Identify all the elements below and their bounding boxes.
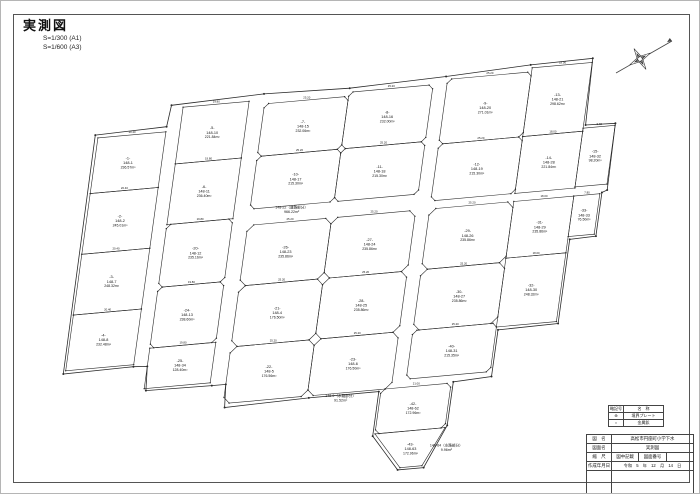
edge-dimension: 25.20 (296, 148, 303, 152)
parcel: -9-148-20271.01m²25.20 (439, 71, 532, 145)
parcel-lot-number: 148-8 (99, 338, 109, 342)
vertex-dot (133, 364, 134, 365)
vertex-dot (435, 208, 436, 209)
parcel-lot-number: 148-26 (462, 234, 474, 238)
vertex-dot (324, 272, 325, 273)
vertex-dot (397, 469, 399, 471)
vertex-dot (422, 263, 423, 264)
vertex-dot (165, 131, 166, 132)
vertex-dot (492, 323, 493, 324)
edge-dimension: 25.20 (371, 209, 378, 213)
parcel-index-label: -32- (528, 284, 535, 288)
vertex-dot (428, 214, 429, 215)
scale-value: 図中記載 (612, 453, 639, 462)
vertex-dot (450, 386, 451, 387)
vertex-dot (228, 402, 229, 403)
parcel-index-label: -10- (292, 173, 299, 177)
vertex-dot (556, 321, 557, 322)
parcel-index-label: -3- (109, 275, 114, 279)
vertex-dot (418, 189, 419, 190)
edge-dimension: 7.80 (584, 190, 590, 194)
parcel-area-label: 298.62m² (550, 102, 566, 106)
vertex-dot (240, 279, 241, 280)
vertex-dot (431, 196, 432, 197)
parcel-area-label: 215.30m² (372, 174, 388, 178)
vertex-dot (372, 435, 374, 437)
title-block-row: 作成年月日 令和 5 年 12 月 14 日 (587, 462, 694, 471)
legend-header-name: 名 称 (624, 406, 664, 413)
blank-cell (612, 471, 694, 494)
vertex-dot (599, 193, 600, 194)
vertex-dot (157, 291, 158, 292)
parcel-index-label: -12- (473, 162, 480, 166)
vertex-dot (421, 141, 422, 142)
parcel-area-label: 98.20m² (589, 159, 603, 163)
parcel-index-label: -1- (126, 156, 131, 160)
vertex-dot (530, 64, 532, 66)
vertex-dot (557, 323, 559, 325)
legend-symbol-boundary-plate: ⊕ (609, 413, 624, 420)
vertex-dot (337, 149, 338, 150)
vertex-dot (307, 389, 308, 390)
vertex-dot (246, 231, 247, 232)
vertex-dot (268, 103, 269, 104)
parcel-index-label: -13- (554, 93, 561, 97)
edge-dimension: 20.40 (113, 247, 120, 251)
vertex-dot (325, 218, 326, 219)
edge-dimension: 18.00 (533, 251, 540, 255)
vertex-dot (166, 126, 168, 128)
vertex-dot (421, 465, 422, 466)
vertex-dot (412, 334, 413, 335)
vertex-dot (513, 201, 514, 202)
annotation-line: 148-64（水路部分） (430, 443, 463, 448)
edge-dimension: 20.40 (121, 186, 128, 190)
vertex-dot (445, 423, 446, 424)
parcel: -31-148-29235.86m²18.00 (505, 194, 574, 259)
vertex-dot (210, 382, 211, 383)
parcel-lot-number: 148-7 (107, 280, 117, 284)
parcel: -14-148-28221.84m²18.00 (514, 129, 583, 194)
sheet-name-label: 図面名 (587, 444, 612, 453)
vertex-dot (442, 143, 443, 144)
parcel-index-label: -43- (407, 442, 414, 446)
parcel-index-label: -21- (274, 306, 281, 310)
vertex-dot (592, 57, 594, 59)
parcel-lot-number: 148-1 (123, 161, 133, 165)
vertex-dot (606, 183, 607, 184)
drawing-name-label: 図 名 (587, 435, 612, 444)
edge-dimension: 19.80 (197, 217, 204, 221)
vertex-dot (263, 93, 265, 95)
parcel-index-label: -25- (177, 359, 184, 363)
parcel: -20-148-12235.16m²19.80 (158, 217, 233, 288)
parcel-lot-number: 148-15 (297, 125, 309, 129)
parcel-area-label: 176.50m² (270, 315, 286, 319)
cadastral-map: -1-148-1236.57m²20.40-2-148-2245.01m²20.… (1, 1, 699, 493)
vertex-dot (428, 84, 429, 85)
vertex-dot (62, 373, 64, 375)
creation-date-label: 作成年月日 (587, 462, 612, 471)
vertex-dot (166, 224, 167, 225)
parcel-index-label: -33- (581, 209, 588, 213)
parcel-area-label: 172.96m² (406, 411, 422, 415)
parcel: -6-148-11236.40m²19.80 (166, 156, 242, 225)
vertex-dot (312, 395, 313, 396)
vertex-dot (149, 248, 150, 249)
parcel: -15-148-3298.20m²9.60 (574, 122, 616, 187)
parcel: -40-148-31215.35m²25.20 (406, 322, 497, 379)
vertex-dot (334, 197, 335, 198)
parcel-area-label: 76.50m² (578, 218, 592, 222)
parcel-area-label: 215.30m² (469, 171, 485, 175)
edge-dimension: 25.20 (278, 278, 285, 282)
parcel-lot-number: 148-63 (404, 447, 416, 451)
edge-dimension: 19.80 (188, 280, 195, 284)
parcel-area-label: 235.86m² (460, 238, 476, 242)
parcel-index-label: -42- (410, 402, 417, 406)
vertex-dot (320, 338, 321, 339)
vertex-dot (344, 96, 345, 97)
vertex-dot (349, 87, 351, 89)
vertex-dot (420, 275, 421, 276)
vertex-dot (601, 192, 603, 194)
vertex-dot (257, 152, 258, 153)
vertex-dot (340, 152, 341, 153)
parcel: -27-148-24235.86m²25.20 (324, 209, 416, 278)
parcel-area-label: 176.56m² (262, 374, 278, 378)
parcel: -28-148-25235.86m²25.20 (315, 270, 407, 339)
vertex-dot (446, 383, 447, 384)
vertex-dot (162, 286, 163, 287)
vertex-dot (241, 157, 242, 158)
edge-dimension: 25.20 (354, 331, 361, 335)
vertex-dot (150, 344, 151, 345)
edge-dimension: 25.20 (303, 96, 310, 100)
parcel-index-label: -28- (358, 299, 365, 303)
parcel-index-label: -14- (545, 156, 552, 160)
vertex-dot (401, 271, 402, 272)
edge-dimension: 18.00 (541, 194, 548, 198)
parcel-index-label: -4- (101, 334, 106, 338)
parcel-index-label: -26- (282, 246, 289, 250)
parcel: -5-148-10221.84m²19.80 (175, 100, 250, 165)
parcel-lot-number: 148-23 (280, 250, 292, 254)
vertex-dot (145, 390, 147, 392)
legend-row: ⊕ 境界プレート (609, 413, 664, 420)
vertex-dot (532, 67, 533, 68)
vertex-dot (446, 83, 447, 84)
vertex-dot (582, 128, 583, 129)
parcel-area-label: 221.84m² (205, 135, 221, 139)
vertex-dot (253, 208, 254, 209)
parcel-index-label: -9- (483, 102, 488, 106)
vertex-dot (220, 281, 221, 282)
vertex-dot (410, 378, 411, 379)
parcel-lot-number: 148-28 (543, 161, 555, 165)
parcel-lot-number: 148-24 (364, 243, 376, 247)
vertex-dot (182, 107, 183, 108)
vertex-dot (606, 189, 608, 191)
vertex-dot (330, 223, 331, 224)
vertex-dot (211, 385, 213, 387)
vertex-dot (337, 201, 338, 202)
parcel-index-label: -31- (536, 221, 543, 225)
vertex-dot (397, 337, 398, 338)
vertex-dot (514, 193, 515, 194)
parcel: -33-148-3376.50m²7.80 (568, 190, 601, 237)
vertex-dot (170, 224, 171, 225)
vertex-dot (499, 262, 500, 263)
parcel-lot-number: 148-12 (190, 251, 202, 255)
edge-dimension: 25.20 (486, 71, 493, 75)
vertex-dot (444, 427, 445, 428)
edge-dimension: 25.20 (388, 84, 395, 88)
edge-dimension: 18.00 (559, 61, 566, 65)
vertex-dot (392, 332, 393, 333)
vertex-dot (261, 156, 262, 157)
parcel-area-label: 232.48m² (96, 343, 112, 347)
vertex-dot (166, 228, 167, 229)
legend-name-metal-pin: 金属鋲 (624, 420, 664, 427)
title-block: 図 名 高松市円座町小学下水 図面名 実測図 縮 尺 図中記載 図面番号 作成年… (586, 434, 694, 494)
parcel-lot-number: 148-25 (355, 303, 367, 307)
annotation-line: 9.96m² (441, 448, 453, 452)
vertex-dot (348, 96, 349, 97)
vertex-dot (486, 371, 487, 372)
parcel: -42-148-62172.96m²21.00 (375, 382, 452, 435)
parcel: -3-148-7248.32m²20.40 (73, 247, 151, 316)
parcel-area-label: 215.35m² (444, 354, 460, 358)
vertex-dot (263, 107, 264, 108)
vertex-dot (216, 338, 217, 339)
vertex-dot (232, 222, 233, 223)
vertex-dot (490, 367, 491, 368)
legend-row: ○ 金属鋲 (609, 420, 664, 427)
parcel-index-label: -5- (210, 126, 215, 130)
parcel-area-label: 176.50m² (346, 367, 362, 371)
annotation-line: 966.22m² (284, 210, 300, 214)
vertex-dot (132, 366, 134, 368)
annotation-label: 148-64（水路部分）9.96m² (430, 443, 463, 452)
vertex-dot (439, 140, 440, 141)
vertex-dot (414, 216, 415, 217)
parcel-lot-number: 148-30 (525, 288, 537, 292)
parcel-index-label: -2- (118, 215, 123, 219)
vertex-dot (614, 122, 616, 124)
vertex-dot (507, 201, 508, 202)
vertex-dot (248, 101, 249, 102)
parcel-lot-number: 148-11 (198, 190, 210, 194)
vertex-dot (391, 382, 392, 383)
vertex-dot (374, 433, 375, 434)
parcel: -30-148-27235.86m²25.20 (413, 261, 505, 330)
vertex-dot (496, 326, 497, 327)
vertex-dot (224, 407, 226, 409)
vertex-dot (375, 429, 376, 430)
edge-dimension: 20.40 (104, 307, 111, 311)
vertex-dot (250, 204, 251, 205)
vertex-dot (65, 370, 66, 371)
title-block-row: 縮 尺 図中記載 図面番号 (587, 453, 694, 462)
edge-dimension: 25.20 (469, 201, 476, 205)
parcel: -1-148-1236.57m²20.40 (90, 130, 167, 194)
vertex-dot (409, 210, 410, 211)
vertex-dot (90, 193, 91, 194)
vertex-dot (425, 137, 426, 138)
vertex-dot (315, 333, 316, 334)
legend-name-boundary-plate: 境界プレート (624, 413, 664, 420)
parcel-area-label: 235.86m² (532, 230, 548, 234)
edge-dimension: 21.00 (413, 382, 420, 386)
vertex-dot (574, 186, 575, 187)
vertex-dot (384, 388, 385, 389)
vertex-dot (236, 346, 237, 347)
vertex-dot (569, 238, 571, 240)
vertex-dot (97, 137, 98, 138)
parcel: -24-148-13238.60m²19.80 (150, 280, 225, 349)
parcel: -26-148-23235.86m²25.20 (240, 217, 332, 286)
parcel-lot-number: 148-4 (272, 311, 282, 315)
parcel-lot-number: 148-17 (290, 177, 302, 181)
vertex-dot (527, 72, 528, 73)
vertex-dot (614, 125, 615, 126)
edge-dimension: 19.80 (213, 100, 220, 104)
vertex-dot (594, 234, 595, 235)
drawing-name-value: 高松市円座町小学下水 (612, 435, 694, 444)
parcel-area-label: 128.40m² (173, 368, 189, 372)
vertex-dot (341, 144, 342, 145)
vertex-dot (518, 136, 519, 137)
parcel-lot-number: 148-5 (264, 370, 274, 374)
vertex-dot (573, 195, 574, 196)
vertex-dot (413, 324, 414, 325)
vertex-dot (446, 424, 448, 426)
edge-dimension: 18.00 (549, 129, 556, 133)
vertex-dot (337, 217, 338, 218)
parcel-area-label: 235.86m² (354, 308, 370, 312)
parcel-area-label: 245.01m² (113, 224, 129, 228)
parcel-index-label: -27- (366, 238, 373, 242)
vertex-dot (228, 218, 229, 219)
vertex-dot (245, 285, 246, 286)
vertex-dot (300, 396, 301, 397)
edge-dimension: 25.20 (380, 141, 387, 145)
vertex-dot (352, 91, 353, 92)
edge-dimension: 20.40 (129, 130, 136, 134)
parcel: -32-148-30248.32m²18.00 (496, 251, 567, 328)
vertex-dot (406, 374, 407, 375)
parcel-index-label: -40- (448, 345, 455, 349)
sheet-number-value (666, 453, 693, 462)
vertex-dot (238, 292, 239, 293)
vertex-dot (329, 201, 330, 202)
parcel: -10-148-17215.30m²25.20 (250, 148, 341, 209)
blank-cell (587, 471, 612, 494)
parcel-area-label: 235.16m² (188, 256, 204, 260)
parcel: -21-148-4176.50m²25.20 (231, 278, 323, 347)
edge-dimension: 25.20 (287, 217, 294, 221)
vertex-dot (522, 136, 523, 137)
parcel-lot-number: 148-33 (578, 213, 590, 217)
parcel-index-label: -22- (266, 365, 273, 369)
vertex-dot (224, 277, 225, 278)
parcel-area-label: 235.86m² (278, 255, 294, 259)
parcel-area-label: 236.40m² (197, 194, 213, 198)
parcel-index-label: -7- (301, 120, 306, 124)
parcel-lot-number: 148-10 (206, 131, 218, 135)
legend-symbol-metal-pin: ○ (609, 420, 624, 427)
vertex-dot (149, 348, 150, 349)
parcel-lot-number: 148-62 (407, 407, 419, 411)
parcel-area-label: 248.32m² (104, 284, 120, 288)
annotation-label: 148-9（水路部分）91.52m² (325, 393, 356, 402)
parcel-index-label: -24- (184, 309, 191, 313)
vertex-dot (317, 278, 318, 279)
vertex-dot (141, 308, 142, 309)
vertex-dot (565, 252, 566, 253)
vertex-dot (408, 264, 409, 265)
vertex-dot (427, 269, 428, 270)
edge-dimension: 25.20 (270, 339, 277, 343)
vertex-dot (378, 391, 380, 393)
parcel-lot-number: 148-6 (348, 362, 358, 366)
title-block-row: 図 名 高松市円座町小学下水 (587, 435, 694, 444)
parcel-lot-number: 148-34 (174, 364, 186, 368)
parcel: -4-148-8232.48m²20.40 (65, 307, 142, 371)
parcel: -12-148-19215.30m²25.20 (431, 136, 523, 202)
parcel-area-label: 238.60m² (180, 318, 196, 322)
vertex-dot (451, 78, 452, 79)
vertex-dot (94, 134, 96, 136)
vertex-dot (229, 352, 230, 353)
vertex-dot (432, 88, 433, 89)
vertex-dot (308, 339, 309, 340)
drawing-sheet: 実測図 S=1/300 (A1) S=1/600 (A3) -1-148-123… (0, 0, 700, 494)
parcel-index-label: -29- (464, 229, 471, 233)
vertex-dot (215, 342, 216, 343)
vertex-dot (380, 393, 381, 394)
parcel-area-label: 271.01m² (478, 111, 494, 115)
parcel: -13-148-21298.62m²18.00 (522, 61, 593, 138)
legend-header-symbol: 略記号 (609, 406, 624, 413)
legend-table: 略記号 名 称 ⊕ 境界プレート ○ 金属鋲 (608, 405, 664, 427)
sheet-number-label: 図面番号 (639, 453, 666, 462)
parcel-index-label: -30- (456, 290, 463, 294)
parcel-area-label: 172.96m² (403, 451, 419, 455)
vertex-dot (223, 285, 224, 286)
vertex-dot (232, 218, 233, 219)
parcel-index-label: -15- (592, 150, 599, 154)
parcel: -22-148-5176.56m²25.20 (223, 339, 314, 404)
edge-dimension: 25.20 (477, 136, 484, 140)
vertex-dot (322, 284, 323, 285)
vertex-dot (313, 345, 314, 346)
vertex-dot (399, 467, 400, 468)
parcel-lot-number: 148-29 (534, 225, 546, 229)
vertex-dot (585, 124, 587, 126)
edge-dimension: 25.20 (362, 270, 369, 274)
annotation-line: 91.52m² (334, 398, 348, 402)
parcel-lot-number: 148-13 (181, 313, 193, 317)
creation-date-value: 令和 5 年 12 月 14 日 (612, 462, 694, 471)
parcel: -29-148-26235.86m²25.20 (422, 201, 514, 270)
parcel: -8-148-16232.00m²25.20 (341, 84, 433, 149)
parcel-lot-number: 148-20 (479, 106, 491, 110)
parcel-index-label: -11- (376, 165, 383, 169)
vertex-dot (452, 381, 454, 383)
vertex-dot (568, 236, 569, 237)
